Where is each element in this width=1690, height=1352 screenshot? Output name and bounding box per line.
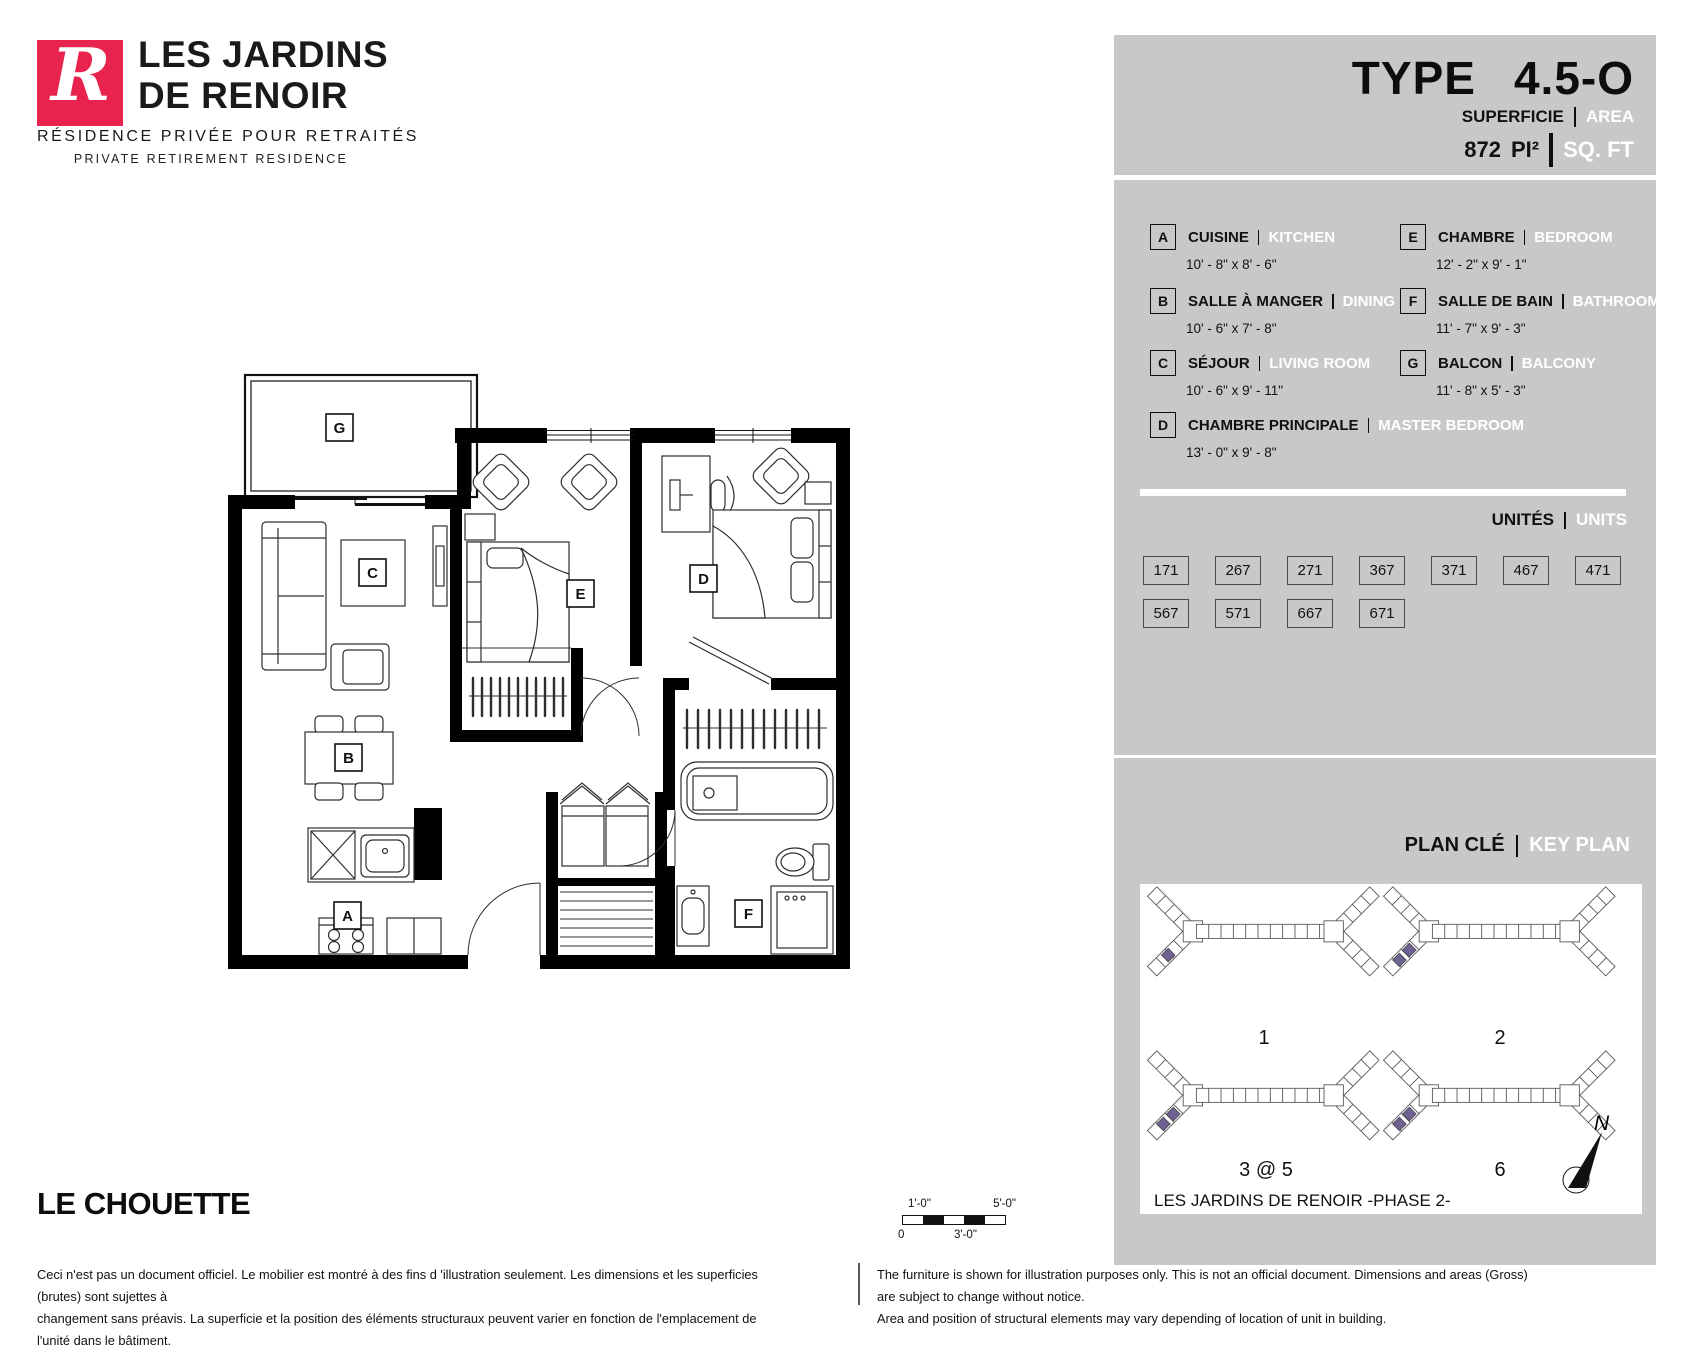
nightstand: [805, 482, 831, 504]
room-dimensions: 13' - 0" x 9' - 8": [1186, 445, 1524, 460]
room-name-en: KITCHEN: [1268, 229, 1335, 246]
key-plan-label-en: KEY PLAN: [1529, 834, 1630, 857]
room-name-en: LIVING ROOM: [1269, 355, 1370, 372]
dishwasher: [311, 831, 355, 879]
disclaimer-fr-line2: changement sans préavis. La superficie e…: [37, 1308, 762, 1352]
sofa: [262, 522, 326, 670]
area-label: AREA: [1586, 107, 1634, 127]
room-label-f: F: [744, 906, 753, 923]
legend-panel: A CUISINE KITCHEN 10' - 8" x 8' - 6" B S…: [1114, 180, 1656, 755]
room-name-en: BALCONY: [1522, 355, 1596, 372]
legend-item-bedroom: E CHAMBRE BEDROOM 12' - 2" x 9' - 1": [1400, 224, 1613, 272]
scale-label: 0: [898, 1229, 904, 1241]
building-3-5: [1148, 1051, 1380, 1140]
room-dimensions: 11' - 7" x 9' - 3": [1436, 321, 1660, 336]
nightstand: [465, 514, 495, 540]
disclaimer-english: The furniture is shown for illustration …: [877, 1264, 1547, 1330]
closet-hangers: [683, 710, 827, 748]
disclaimer-en-line2: Area and position of structural elements…: [877, 1308, 1547, 1330]
divider: [1368, 418, 1370, 433]
divider: [1511, 356, 1513, 371]
armchair: [750, 445, 812, 507]
dryer: [606, 806, 648, 866]
building-1-label: 1: [1258, 1027, 1269, 1049]
room-name-fr: SALLE À MANGER: [1188, 293, 1323, 310]
room-dimensions: 11' - 8" x 5' - 3": [1436, 383, 1596, 398]
room-name-fr: SALLE DE BAIN: [1438, 293, 1553, 310]
closet-door: [689, 637, 773, 684]
units-heading: UNITÉS UNITS: [1492, 510, 1627, 530]
brand-logo: R: [37, 40, 123, 126]
refrigerator: [387, 918, 441, 954]
room-label-c: C: [367, 565, 378, 582]
unit-number: 371: [1431, 556, 1477, 585]
balcony: [245, 375, 477, 497]
room-key-f: F: [1400, 288, 1426, 314]
unit-number: 667: [1287, 599, 1333, 628]
scale-bar: 1'-0" 5'-0" 3'-0" 0: [900, 1198, 1010, 1246]
armchair: [558, 451, 620, 513]
north-arrow-icon: N: [1563, 1112, 1610, 1193]
building-3-5-label: 3 @ 5: [1239, 1159, 1293, 1181]
room-name-en: DINING: [1343, 293, 1396, 310]
bed: [713, 510, 831, 618]
armchair: [331, 644, 389, 690]
unit-number: 267: [1215, 556, 1261, 585]
linen-shelves: [560, 892, 653, 946]
legend-item-master-bedroom: D CHAMBRE PRINCIPALE MASTER BEDROOM 13' …: [1150, 412, 1524, 460]
room-name-fr: CHAMBRE: [1438, 229, 1515, 246]
unit-number: 567: [1143, 599, 1189, 628]
building-2-label: 2: [1494, 1027, 1505, 1049]
superficie-label: SUPERFICIE: [1462, 107, 1564, 127]
dining-chair: [355, 716, 383, 733]
divider: [1562, 294, 1564, 309]
key-plan-label-fr: PLAN CLÉ: [1405, 834, 1505, 857]
brand-name-line2: DE RENOIR: [138, 75, 388, 116]
brand-tagline-fr: RÉSIDENCE PRIVÉE POUR RETRAITÉS: [37, 128, 385, 146]
kitchen-sink: [361, 835, 409, 877]
room-dimensions: 10' - 6" x 9' - 11": [1186, 383, 1370, 398]
room-dimensions: 12' - 2" x 9' - 1": [1436, 257, 1613, 272]
room-key-e: E: [1400, 224, 1426, 250]
walls: [228, 428, 850, 969]
unit-number: 367: [1359, 556, 1405, 585]
divider: [1524, 230, 1526, 245]
room-dimensions: 10' - 6" x 7' - 8": [1186, 321, 1395, 336]
unit-number: 571: [1215, 599, 1261, 628]
disclaimer-en-line1: The furniture is shown for illustration …: [877, 1264, 1547, 1308]
room-name-fr: CHAMBRE PRINCIPALE: [1188, 417, 1359, 434]
room-label-a: A: [342, 908, 353, 925]
area-value: 872: [1464, 137, 1501, 163]
bathroom-vanity: [677, 886, 709, 946]
building-2: [1384, 887, 1616, 976]
floor-plan-svg: G C B A E D F: [215, 330, 855, 975]
unit-number: 471: [1575, 556, 1621, 585]
brand-name: LES JARDINS DE RENOIR: [138, 34, 388, 116]
units-row-2: 567 571 667 671: [1143, 599, 1405, 628]
disclaimer-divider: [858, 1263, 860, 1305]
units-label-fr: UNITÉS: [1492, 510, 1554, 530]
section-divider: [1140, 489, 1626, 496]
area-unit-fr: PI²: [1511, 137, 1539, 163]
room-key-g: G: [1400, 350, 1426, 376]
legend-item-dining: B SALLE À MANGER DINING 10' - 6" x 7' - …: [1150, 288, 1395, 336]
key-plan-svg: 1 2 3 @ 5 6 N LES JARDINS DE RENOIR -PHA…: [1140, 884, 1642, 1214]
divider: [1516, 835, 1519, 857]
superficie-row: SUPERFICIE AREA: [1462, 107, 1634, 127]
room-key-d: D: [1150, 412, 1176, 438]
building-1: [1148, 887, 1380, 976]
divider: [1332, 294, 1334, 309]
room-name-fr: CUISINE: [1188, 229, 1249, 246]
disclaimer-fr-line1: Ceci n'est pas un document officiel. Le …: [37, 1264, 762, 1308]
legend-item-living: C SÉJOUR LIVING ROOM 10' - 6" x 9' - 11": [1150, 350, 1370, 398]
divider: [1259, 356, 1261, 371]
unit-number: 271: [1287, 556, 1333, 585]
room-label-g: G: [334, 420, 346, 437]
scale-label: 1'-0": [908, 1198, 931, 1210]
building-6: [1384, 1051, 1616, 1140]
tv-console: [433, 526, 447, 606]
room-label-e: E: [575, 586, 585, 603]
divider: [1258, 230, 1260, 245]
room-key-a: A: [1150, 224, 1176, 250]
scale-label: 3'-0": [954, 1229, 977, 1241]
legend-item-balcony: G BALCON BALCONY 11' - 8" x 5' - 3": [1400, 350, 1596, 398]
room-key-b: B: [1150, 288, 1176, 314]
room-label-b: B: [343, 750, 354, 767]
key-plan-panel: PLAN CLÉ KEY PLAN: [1114, 758, 1656, 1265]
dining-chair: [315, 783, 343, 800]
divider: [1574, 107, 1576, 127]
type-value: 4.5-O: [1514, 51, 1634, 105]
dining-chair: [355, 783, 383, 800]
unit-number: 467: [1503, 556, 1549, 585]
disclaimer-french: Ceci n'est pas un document officiel. Le …: [37, 1264, 762, 1352]
room-name-en: BEDROOM: [1534, 229, 1612, 246]
divider: [1549, 133, 1553, 167]
desk: [662, 456, 710, 532]
building-6-label: 6: [1494, 1159, 1505, 1181]
legend-item-bathroom: F SALLE DE BAIN BATHROOM 11' - 7" x 9' -…: [1400, 288, 1660, 336]
units-label-en: UNITS: [1576, 510, 1627, 530]
toilet: [776, 844, 829, 880]
room-label-d: D: [698, 571, 709, 588]
logo-r-icon: R: [51, 32, 111, 117]
washer: [562, 806, 604, 866]
sliding-door: [295, 499, 425, 505]
type-title: TYPE 4.5-O: [1352, 51, 1634, 105]
key-plan-map: 1 2 3 @ 5 6 N LES JARDINS DE RENOIR -PHA…: [1140, 884, 1642, 1214]
room-name-en: MASTER BEDROOM: [1378, 417, 1524, 434]
key-plan-caption: LES JARDINS DE RENOIR -PHASE 2-: [1154, 1191, 1451, 1210]
bifold-doors: [560, 783, 650, 804]
unit-number: 171: [1143, 556, 1189, 585]
room-key-c: C: [1150, 350, 1176, 376]
dining-chair: [315, 716, 343, 733]
area-value-row: 872 PI² SQ. FT: [1464, 133, 1634, 167]
scale-bar-graphic: [902, 1215, 1006, 1225]
legend-item-kitchen: A CUISINE KITCHEN 10' - 8" x 8' - 6": [1150, 224, 1335, 272]
armchair: [470, 451, 532, 513]
bathtub: [681, 762, 833, 820]
room-name-fr: BALCON: [1438, 355, 1502, 372]
unit-number: 671: [1359, 599, 1405, 628]
room-dimensions: 10' - 8" x 8' - 6": [1186, 257, 1335, 272]
room-name-fr: SÉJOUR: [1188, 355, 1250, 372]
room-name-en: BATHROOM: [1573, 293, 1660, 310]
shower: [771, 886, 833, 954]
floor-plan-name: LE CHOUETTE: [37, 1186, 250, 1222]
key-plan-heading: PLAN CLÉ KEY PLAN: [1405, 834, 1630, 857]
north-label: N: [1594, 1112, 1610, 1135]
type-header-panel: TYPE 4.5-O SUPERFICIE AREA 872 PI² SQ. F…: [1114, 35, 1656, 175]
area-unit-en: SQ. FT: [1563, 137, 1634, 163]
brand-tagline-en: PRIVATE RETIREMENT RESIDENCE: [37, 152, 385, 166]
type-label: TYPE: [1352, 51, 1476, 105]
divider: [1564, 512, 1566, 529]
bed: [467, 542, 569, 662]
units-row-1: 171 267 271 367 371 467 471: [1143, 556, 1621, 585]
brand-name-line1: LES JARDINS: [138, 34, 388, 75]
scale-label: 5'-0": [993, 1198, 1016, 1210]
